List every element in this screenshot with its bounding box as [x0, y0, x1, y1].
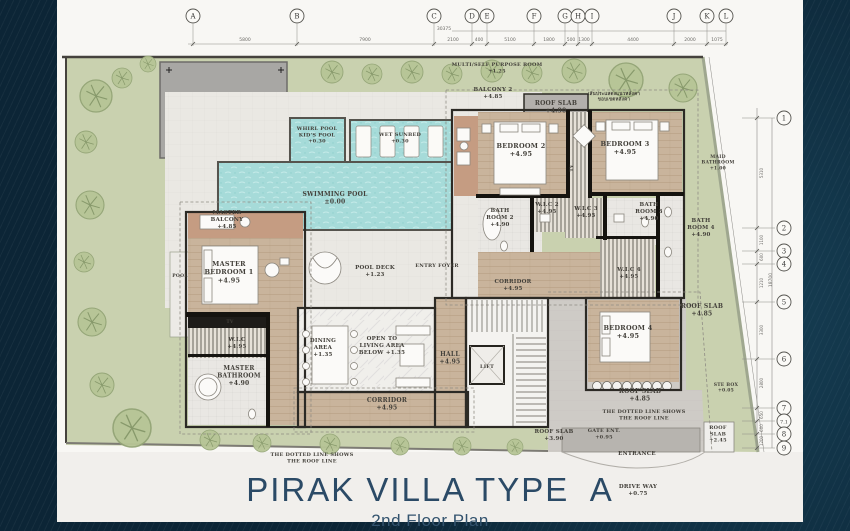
- floor-plan-drawing: MULTI/SELF PURPOSE ROOM+1.25BALCONY 2+4.…: [0, 0, 850, 531]
- dimension-text: 1300: [578, 37, 590, 43]
- grid-row-label: 5: [782, 298, 786, 306]
- plan-label: W.I.C 2+4.95: [534, 202, 559, 215]
- dimension-text: 1075: [711, 37, 723, 43]
- dimension-text: 3300: [759, 324, 764, 335]
- grid-column-label: J: [672, 13, 676, 21]
- grid-column-label: G: [562, 13, 568, 21]
- dimension-text: 1200: [759, 435, 764, 446]
- dimension-text: 5800: [239, 37, 251, 43]
- grid-column-label: E: [484, 13, 489, 21]
- plan-label: W.I.C 4+4.95: [616, 267, 641, 280]
- dimension-text: 1210: [759, 277, 764, 288]
- dimension-text: 1100: [759, 234, 764, 245]
- dimension-text: 4400: [627, 37, 639, 43]
- plan-label: TV: [226, 319, 234, 325]
- slide-background: MULTI/SELF PURPOSE ROOM+1.25BALCONY 2+4.…: [0, 0, 850, 531]
- overall-width-dimension: 30375: [437, 26, 451, 32]
- dimension-text: 500: [567, 37, 576, 43]
- grid-column-label: C: [431, 13, 436, 21]
- bathroom-4-floor: [660, 196, 684, 298]
- grid-row-label: 9: [782, 444, 786, 452]
- grid-row-label: 7: [782, 404, 786, 412]
- plan-label: POOL: [172, 273, 188, 279]
- dimension-text: 2800: [759, 377, 764, 388]
- dimension-text: 600: [759, 424, 764, 432]
- grid-row-label: 7.1: [780, 419, 788, 425]
- dimension-text: 2100: [447, 37, 459, 43]
- grid-row-label: 1: [782, 114, 786, 122]
- grid-column-label: B: [294, 13, 299, 21]
- dimension-text: 5100: [504, 37, 516, 43]
- dimension-text: 600: [759, 253, 764, 261]
- grid-row-label: 8: [782, 430, 786, 438]
- plan-label: TV: [569, 164, 575, 172]
- grid-row-label: 2: [782, 224, 786, 232]
- plan-label: ENTRY FOYER: [415, 263, 459, 269]
- dimension-text: 650: [759, 411, 764, 419]
- grid-column-label: F: [532, 13, 537, 21]
- grid-column-label: D: [469, 13, 475, 21]
- plan-label: HALL+4.95: [440, 351, 461, 366]
- plan-label: ROOFSLAB+2.45: [709, 425, 727, 444]
- grid-column-label: K: [704, 13, 710, 21]
- grid-column-label: H: [575, 13, 581, 21]
- dimension-text: 2000: [684, 37, 696, 43]
- corridor-floor: [478, 252, 600, 298]
- grid-column-label: L: [724, 13, 729, 21]
- grid-row-label: 4: [782, 260, 787, 268]
- grid-column-label: A: [189, 13, 196, 21]
- plan-label: LIFT: [480, 364, 494, 370]
- grid-row-label: 6: [782, 355, 787, 363]
- dimension-text: 7900: [359, 37, 371, 43]
- plan-label: W.I.C+4.95: [227, 337, 246, 350]
- plan-label: W.I.C 3+4.95: [573, 206, 598, 219]
- overall-height-dimension: 18700: [768, 273, 774, 287]
- dimension-text: 5310: [759, 167, 764, 178]
- plan-label: ENTRANCE: [618, 451, 656, 457]
- grid-column-label: I: [591, 13, 594, 21]
- grid-row-label: 3: [782, 247, 786, 255]
- dimension-text: 400: [475, 37, 484, 43]
- dimension-text: 1800: [543, 37, 555, 43]
